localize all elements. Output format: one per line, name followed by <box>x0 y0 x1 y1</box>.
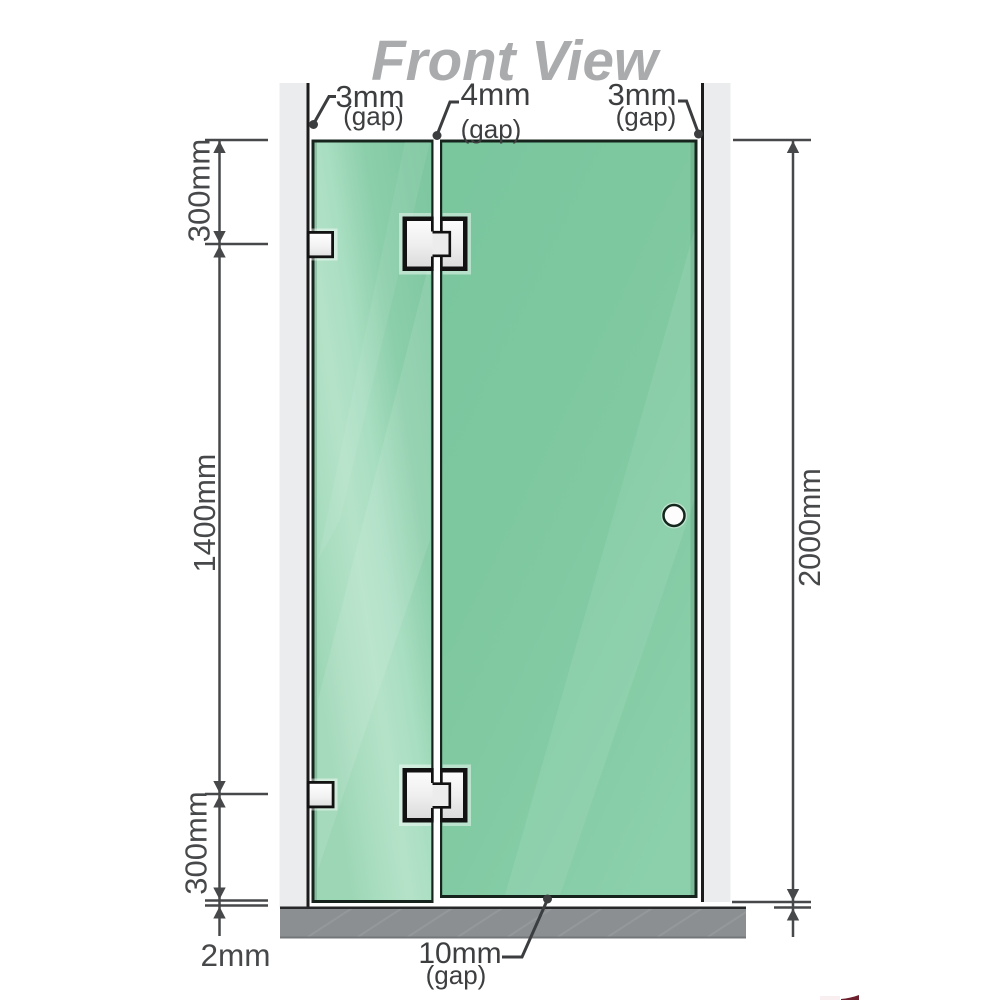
svg-text:4mm: 4mm <box>461 76 531 112</box>
svg-text:300mm: 300mm <box>178 791 213 894</box>
svg-text:(gap): (gap) <box>616 102 677 132</box>
svg-text:1400mm: 1400mm <box>188 454 222 573</box>
svg-text:(gap): (gap) <box>426 960 487 990</box>
svg-text:2mm: 2mm <box>201 937 271 973</box>
svg-text:(gap): (gap) <box>343 101 404 131</box>
svg-text:300mm: 300mm <box>181 139 216 242</box>
svg-text:2000mm: 2000mm <box>793 468 827 587</box>
svg-text:(gap): (gap) <box>461 114 522 144</box>
